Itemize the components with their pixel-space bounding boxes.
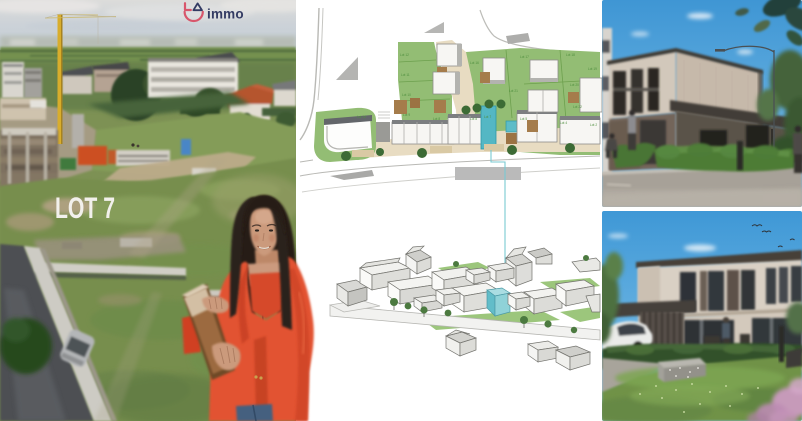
svg-text:Lot 20: Lot 20 [570,83,579,87]
svg-text:Lot 11: Lot 11 [401,73,410,77]
svg-text:Lot 8: Lot 8 [433,117,440,121]
svg-text:LOT 7: LOT 7 [55,192,115,225]
svg-text:Lot 4: Lot 4 [560,121,567,125]
svg-text:immo: immo [207,7,244,22]
svg-text:Lot 14: Lot 14 [357,115,366,119]
svg-text:Lot 2: Lot 2 [590,123,597,127]
svg-text:Lot 19: Lot 19 [588,67,597,71]
svg-text:Lot 8: Lot 8 [470,117,477,121]
svg-text:Lot 5: Lot 5 [520,117,527,121]
svg-text:Lot 7: Lot 7 [484,115,491,119]
svg-text:Lot 10: Lot 10 [402,93,411,97]
svg-text:Lot 12: Lot 12 [400,53,409,57]
svg-text:Lot 9: Lot 9 [403,113,410,117]
svg-text:Lot 17: Lot 17 [520,55,529,59]
svg-text:Lot 22: Lot 22 [573,105,582,109]
svg-text:Lot 18: Lot 18 [566,53,575,57]
svg-text:Lot 16: Lot 16 [470,61,479,65]
svg-text:Lot 21: Lot 21 [509,89,518,93]
